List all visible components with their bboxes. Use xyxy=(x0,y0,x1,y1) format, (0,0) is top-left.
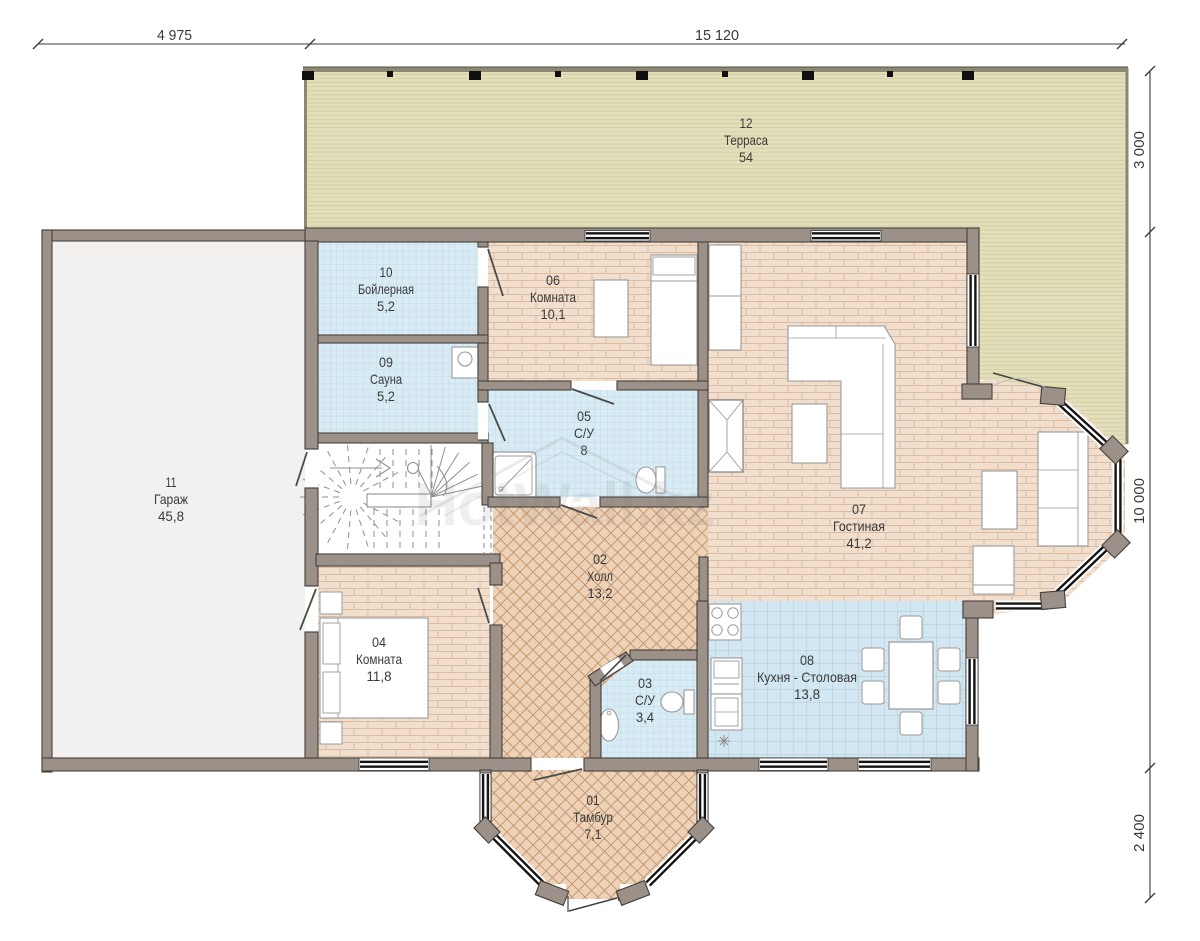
svg-text:5,2: 5,2 xyxy=(377,298,395,314)
svg-text:05: 05 xyxy=(577,408,591,424)
svg-text:Терраса: Терраса xyxy=(724,132,768,148)
svg-text:3 000: 3 000 xyxy=(1131,131,1148,169)
svg-text:13,8: 13,8 xyxy=(794,686,820,702)
svg-text:Комната: Комната xyxy=(356,651,402,667)
svg-text:С/У: С/У xyxy=(574,425,594,441)
svg-text:09: 09 xyxy=(379,354,393,370)
svg-text:10,1: 10,1 xyxy=(541,306,566,322)
svg-text:11: 11 xyxy=(166,474,177,490)
svg-text:03: 03 xyxy=(638,675,652,691)
svg-text:Комната: Комната xyxy=(530,289,576,305)
svg-text:01: 01 xyxy=(587,792,600,808)
svg-text:Гараж: Гараж xyxy=(154,491,189,507)
svg-text:41,2: 41,2 xyxy=(847,535,872,551)
svg-text:2 400: 2 400 xyxy=(1131,814,1148,852)
svg-text:10: 10 xyxy=(380,264,393,280)
svg-text:04: 04 xyxy=(372,634,386,650)
svg-text:54: 54 xyxy=(739,149,753,165)
svg-text:Тамбур: Тамбур xyxy=(573,809,613,825)
svg-text:7,1: 7,1 xyxy=(585,826,602,842)
svg-text:Сауна: Сауна xyxy=(370,371,402,387)
svg-text:02: 02 xyxy=(593,551,607,567)
svg-text:С/У: С/У xyxy=(635,692,655,708)
svg-text:5,2: 5,2 xyxy=(377,388,395,404)
svg-text:Бойлерная: Бойлерная xyxy=(358,281,414,297)
svg-text:Гостиная: Гостиная xyxy=(833,518,885,534)
svg-text:11,8: 11,8 xyxy=(367,668,392,684)
svg-text:3,4: 3,4 xyxy=(636,709,654,725)
svg-text:Холл: Холл xyxy=(587,568,613,584)
svg-text:15 120: 15 120 xyxy=(695,27,739,44)
svg-text:Кухня - Столовая: Кухня - Столовая xyxy=(757,669,857,685)
svg-text:06: 06 xyxy=(546,272,560,288)
svg-text:08: 08 xyxy=(800,652,814,668)
svg-text:12: 12 xyxy=(740,115,753,131)
svg-text:07: 07 xyxy=(852,501,866,517)
svg-text:4 975: 4 975 xyxy=(157,27,192,44)
svg-text:10 000: 10 000 xyxy=(1131,478,1148,524)
svg-text:13,2: 13,2 xyxy=(588,585,613,601)
svg-text:45,8: 45,8 xyxy=(158,508,184,524)
